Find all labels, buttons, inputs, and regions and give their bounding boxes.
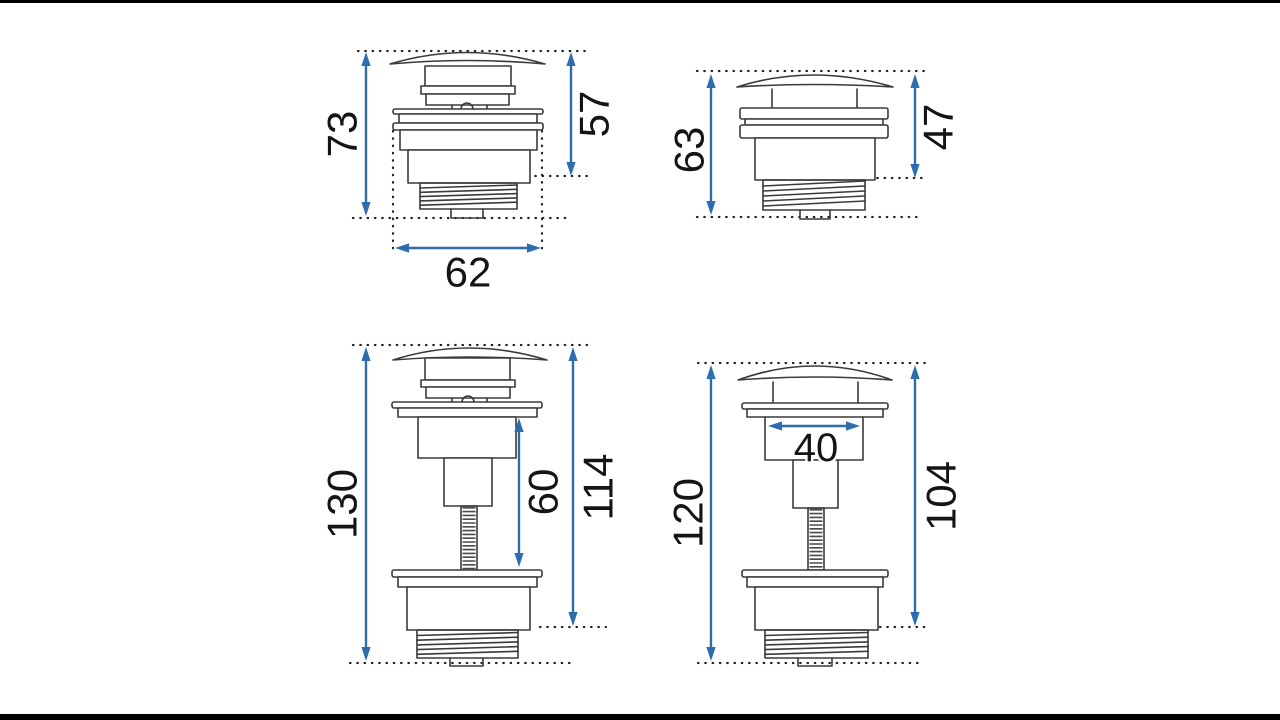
dim-label-overall-height: 120 xyxy=(665,478,712,548)
arrowhead-down xyxy=(706,201,715,215)
figure-top-left: 73 57 62 xyxy=(319,51,618,296)
flange-band-3 xyxy=(393,123,543,130)
cap-cylinder-sides xyxy=(772,89,857,108)
arrowhead-down xyxy=(706,647,715,661)
letterbox-bottom xyxy=(0,714,1280,720)
valve-body xyxy=(407,587,530,630)
arrowhead-up xyxy=(706,365,715,379)
flange-band-1 xyxy=(392,402,542,408)
lower-flange-band-1 xyxy=(742,570,888,577)
valve-body xyxy=(755,138,875,180)
screenshot-canvas: 73 57 62 xyxy=(0,0,1280,720)
thread-coil-lines xyxy=(763,181,865,206)
dim-label-tube-width: 40 xyxy=(794,426,839,470)
cap-lip xyxy=(421,380,515,387)
arrowhead-up xyxy=(910,74,919,88)
adjuster-block xyxy=(444,458,492,506)
cap-dome xyxy=(738,366,892,380)
arrowhead-up xyxy=(706,74,715,88)
cap-cylinder xyxy=(425,66,511,86)
thread-coil-lines xyxy=(417,633,518,655)
cap-cylinder-sides xyxy=(773,382,858,403)
dim-label-overall-height: 63 xyxy=(666,127,713,174)
arrowhead-up xyxy=(568,347,577,361)
upper-tube xyxy=(418,417,516,458)
figure-top-right: 63 47 xyxy=(666,71,962,219)
arrowhead-up xyxy=(361,52,370,66)
figure-bottom-left: 130 114 60 xyxy=(319,345,622,666)
figure-bottom-right: 120 104 40 xyxy=(665,363,965,666)
arrowhead-up xyxy=(566,52,575,66)
arrowhead-up xyxy=(910,365,919,379)
letterbox-top xyxy=(0,0,1280,3)
dim-label-flange-width: 62 xyxy=(445,249,492,296)
valve-body xyxy=(755,587,878,630)
arrowhead-right xyxy=(527,243,541,252)
arrowhead-down xyxy=(514,553,523,567)
dim-label-overall-height: 73 xyxy=(319,111,366,158)
cap-cylinder xyxy=(425,358,510,380)
lower-flange-band-2 xyxy=(747,577,883,587)
flange-band-2 xyxy=(745,119,883,125)
cap-dome xyxy=(737,75,893,87)
flange-band-1 xyxy=(740,108,888,119)
flange-band-3 xyxy=(740,125,888,138)
flange-band-2 xyxy=(398,408,537,417)
thread-coil-lines xyxy=(420,185,517,205)
dim-label-main-height: 114 xyxy=(575,454,622,521)
arrowhead-right xyxy=(846,421,860,430)
dim-label-upper-height: 47 xyxy=(915,104,962,151)
valve-body xyxy=(408,150,530,183)
arrowhead-down xyxy=(361,202,370,216)
dim-label-rod-section: 60 xyxy=(520,469,567,516)
arrowhead-down xyxy=(568,612,577,626)
upper-body xyxy=(400,130,537,150)
bottom-tab xyxy=(451,209,483,218)
dim-label-upper-height: 57 xyxy=(571,91,618,138)
lower-flange-band-2 xyxy=(398,577,537,587)
cap-lip xyxy=(421,86,515,94)
dim-label-main-height: 104 xyxy=(918,461,965,531)
cap-dome xyxy=(390,53,545,65)
arrowhead-down xyxy=(910,612,919,626)
flange-band-2 xyxy=(747,409,883,417)
arrowhead-left xyxy=(768,421,782,430)
thread-coil-lines xyxy=(765,633,868,655)
arrowhead-up xyxy=(361,347,370,361)
arrowhead-down xyxy=(910,164,919,178)
arrowhead-down xyxy=(361,647,370,661)
lower-flange-band-1 xyxy=(392,570,542,577)
flange-band-2 xyxy=(399,114,537,123)
arrowhead-down xyxy=(566,162,575,176)
dim-label-overall-height: 130 xyxy=(319,469,366,539)
arrowhead-left xyxy=(395,243,409,252)
flange-band-1 xyxy=(742,403,888,409)
drain-valves-dimension-diagram: 73 57 62 xyxy=(0,0,1280,720)
